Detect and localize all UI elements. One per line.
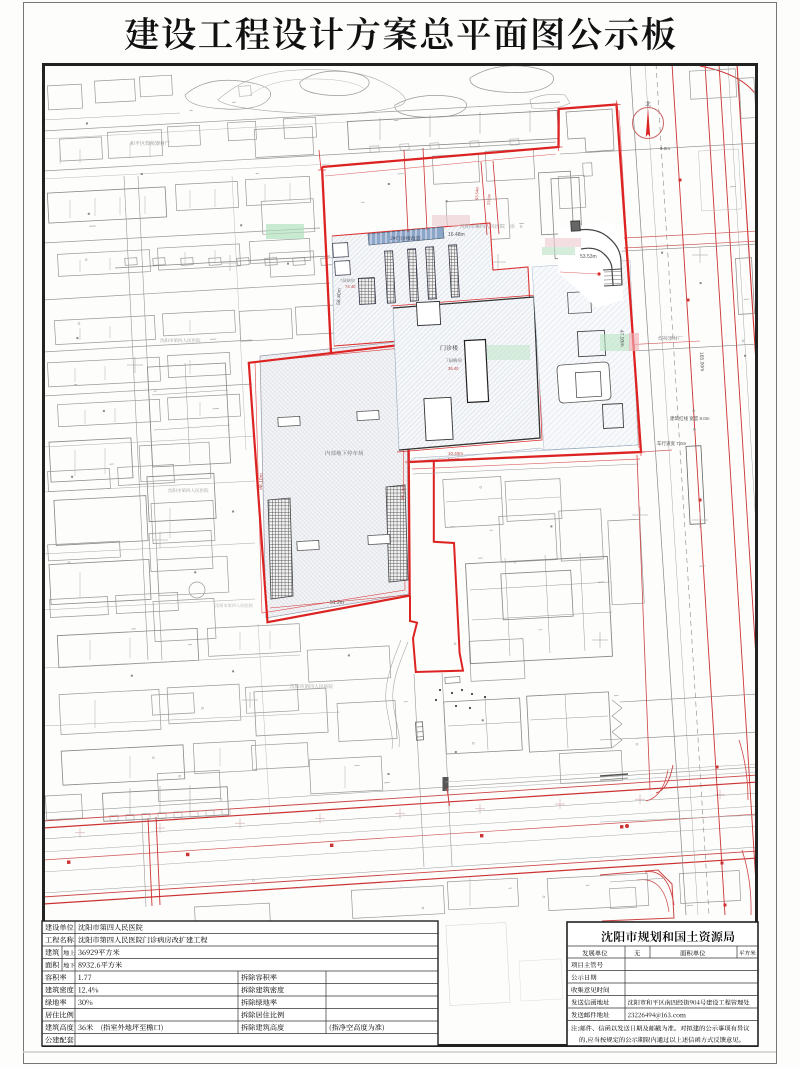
svg-text:74.40: 74.40 [345, 284, 356, 289]
svg-text:47.93m: 47.93m [618, 330, 625, 347]
svg-text:53.53m: 53.53m [580, 254, 597, 260]
svg-text:36.40: 36.40 [448, 366, 459, 371]
svg-text:9.0m: 9.0m [660, 146, 670, 151]
svg-text:63.54m: 63.54m [474, 186, 480, 200]
svg-text:车行道宽 7.0m: 车行道宽 7.0m [657, 440, 687, 447]
svg-text:16.48m: 16.48m [448, 232, 465, 238]
svg-text:23.6m: 23.6m [486, 193, 492, 205]
svg-text:58.40m: 58.40m [336, 288, 343, 305]
svg-text:10.40m: 10.40m [448, 451, 463, 456]
svg-text:54.30m: 54.30m [448, 457, 463, 462]
svg-text:165.00m: 165.00m [698, 352, 705, 372]
svg-text:98.10m: 98.10m [258, 473, 265, 490]
svg-text:51.2m: 51.2m [330, 600, 344, 606]
svg-text:96.10m: 96.10m [400, 485, 406, 501]
svg-text:建筑红线 宽度 8.0m: 建筑红线 宽度 8.0m [670, 415, 710, 422]
